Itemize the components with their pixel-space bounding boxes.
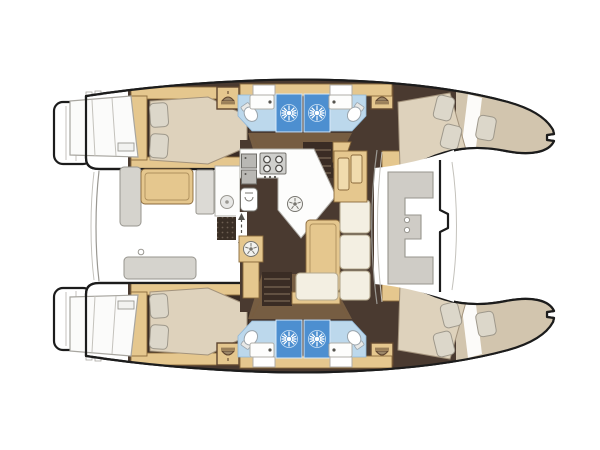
forward-cockpit — [372, 150, 457, 304]
sideboard-panel-2 — [351, 155, 362, 183]
wet-bar-drain — [225, 200, 229, 204]
cockpit-aft-bench — [124, 257, 196, 279]
salon — [236, 133, 378, 319]
cockpit-aft-edge — [96, 171, 99, 281]
cockpit-table — [141, 169, 193, 204]
stove-knobs — [264, 176, 276, 178]
sofa-cushion-3 — [296, 273, 338, 300]
cup-holder-1 — [404, 217, 409, 222]
companionway-steps-starboard — [262, 272, 292, 306]
galley-cabinet-aft — [243, 262, 259, 298]
module-knob-2 — [245, 173, 247, 175]
grill-grate-dots — [217, 217, 239, 240]
cockpit-aft-edge-2 — [91, 172, 94, 280]
galley-appliance — [241, 188, 258, 211]
helm-panel — [196, 170, 214, 214]
galley-module-bottom — [242, 170, 257, 184]
galley-module-top — [242, 154, 257, 168]
davit-port — [118, 143, 134, 151]
cockpit-l-bench — [120, 167, 141, 226]
catamaran-floor-plan — [0, 0, 600, 450]
module-knob-1 — [245, 157, 247, 159]
sofa-cushion-corner — [340, 271, 370, 300]
davit-starboard — [118, 301, 134, 309]
sofa-cushion-2 — [340, 235, 370, 269]
floor-plan-canvas — [0, 0, 600, 450]
cockpit-post — [138, 249, 144, 255]
sideboard-panel-1 — [338, 158, 349, 190]
cup-holder-2 — [404, 227, 409, 232]
sofa-cushion-1 — [340, 200, 370, 233]
